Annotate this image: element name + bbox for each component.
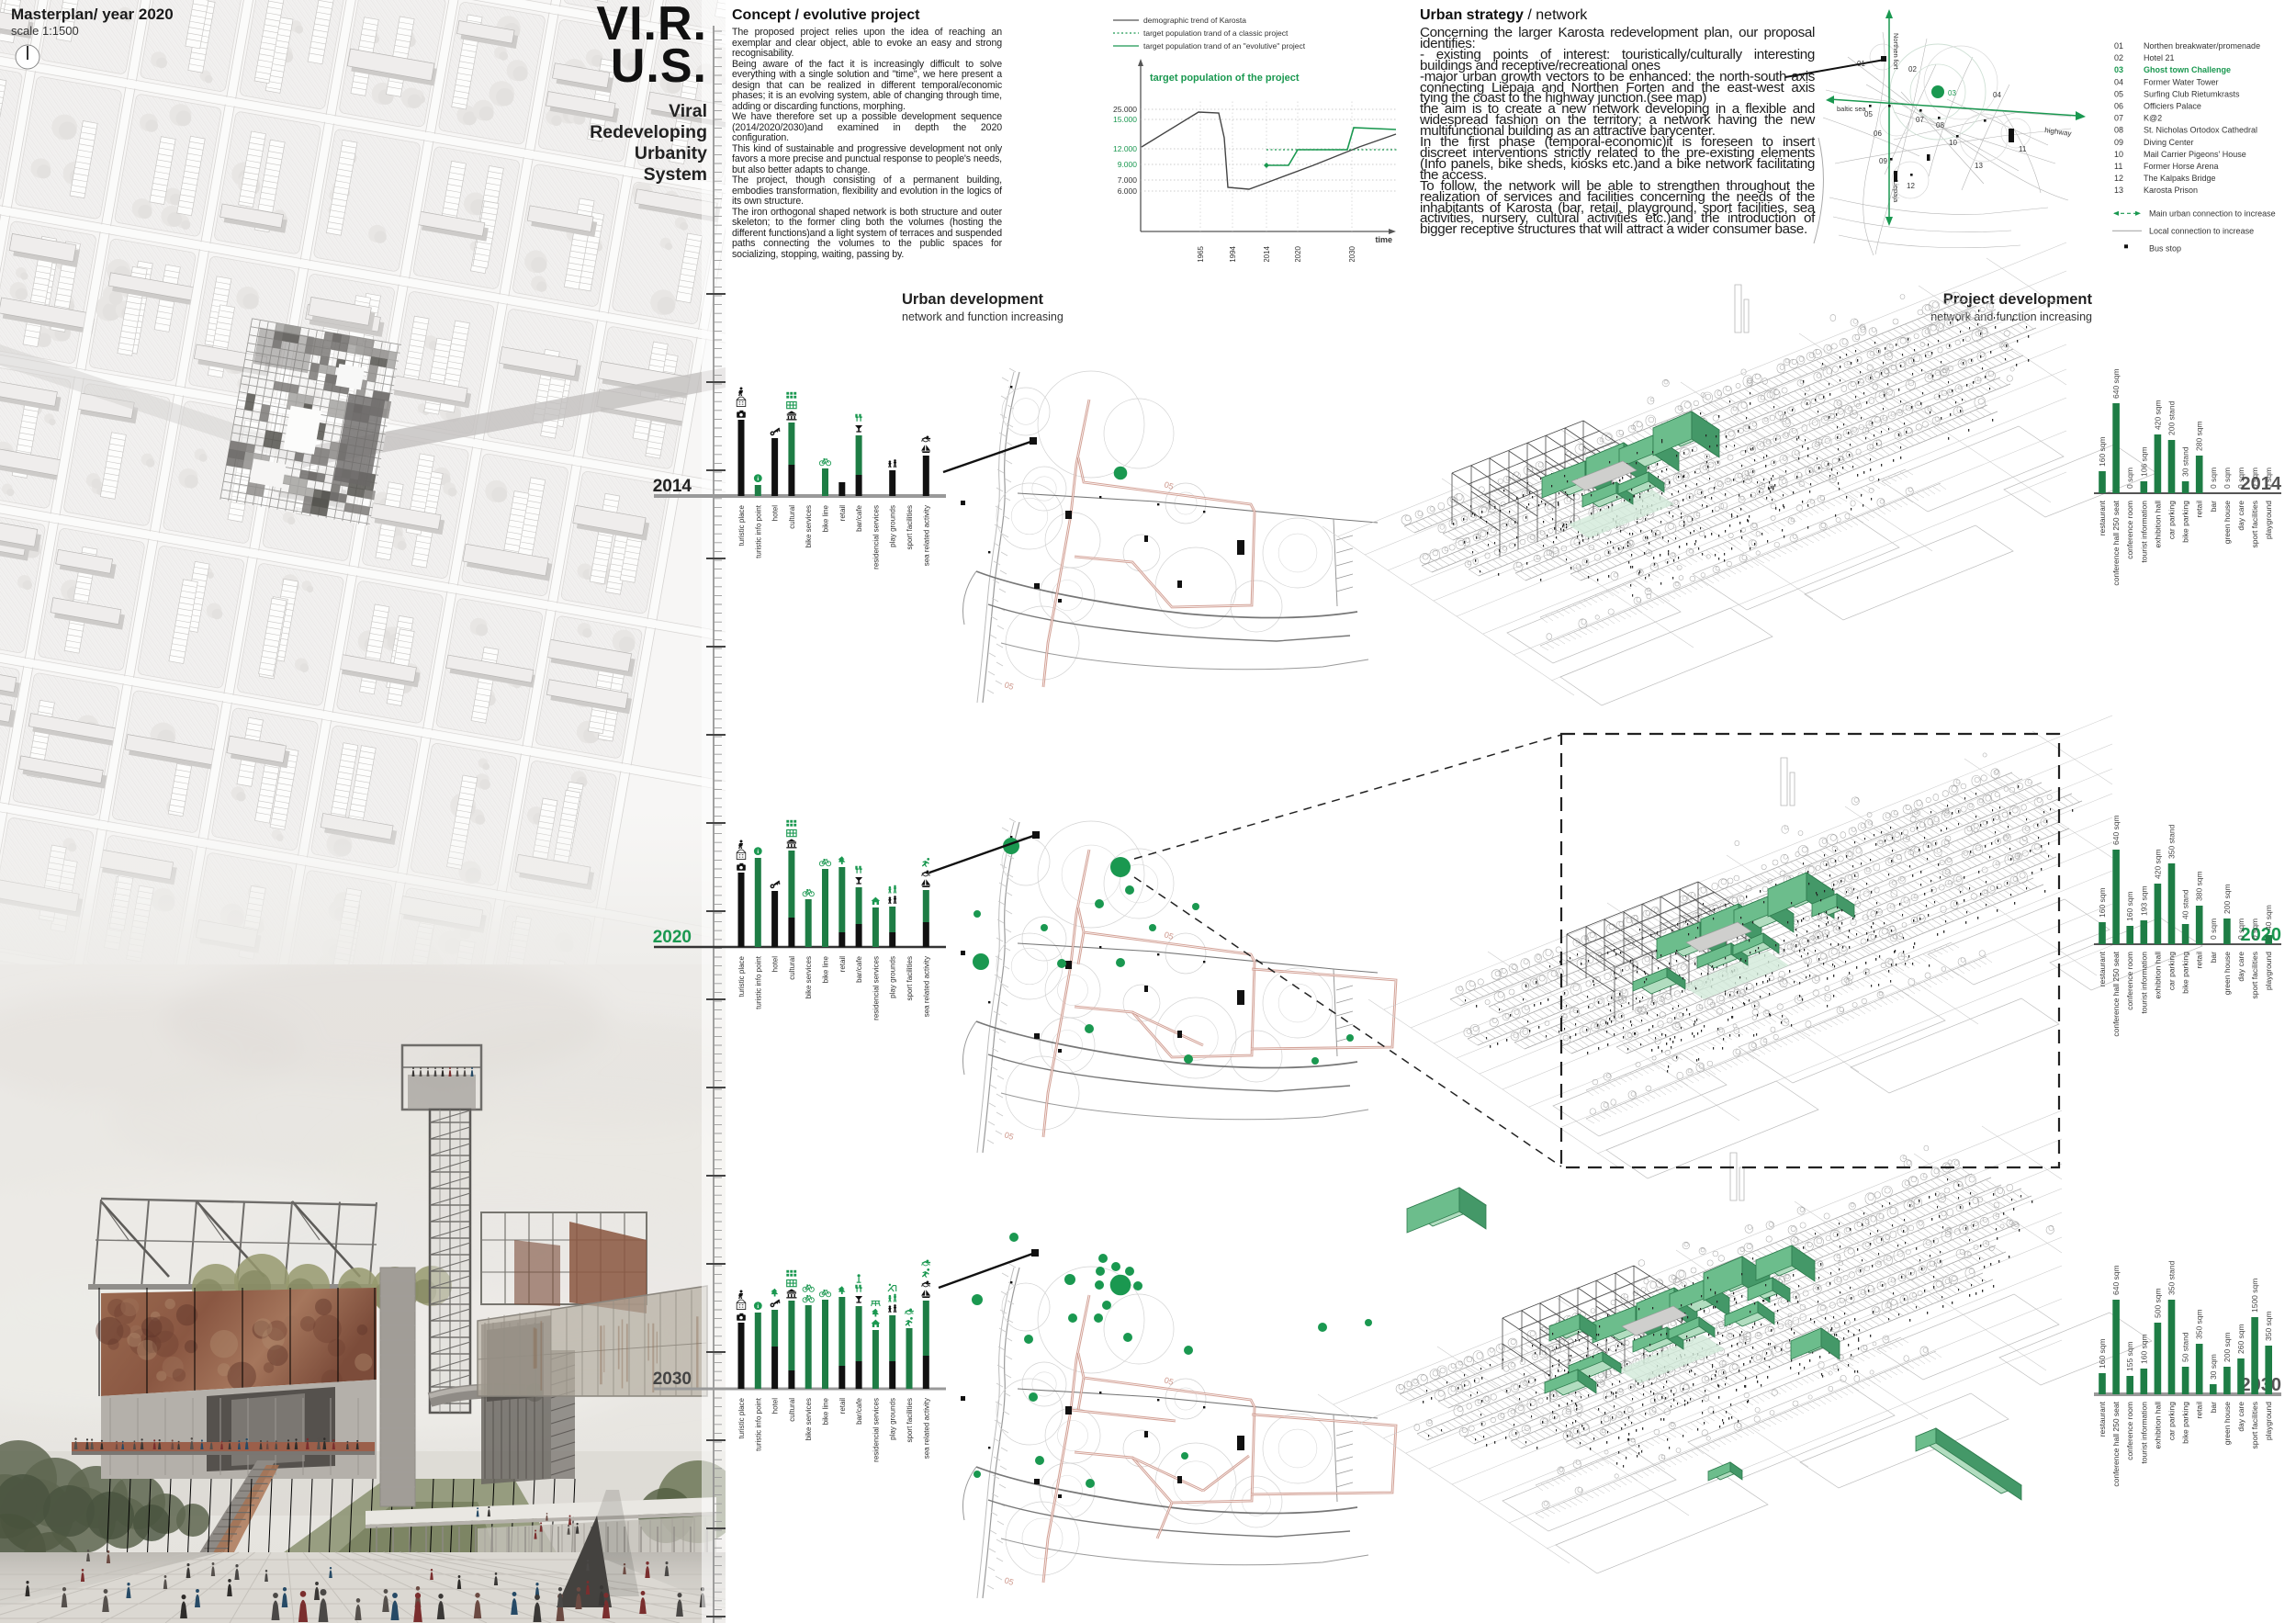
svg-text:day care: day care xyxy=(2236,501,2245,531)
svg-text:sport facilities: sport facilities xyxy=(2250,1402,2259,1449)
svg-text:420 sqm: 420 sqm xyxy=(2153,400,2162,430)
svg-text:1500 sqm: 1500 sqm xyxy=(2250,1279,2259,1313)
svg-text:sport facilities: sport facilities xyxy=(906,956,914,1000)
svg-text:bike services: bike services xyxy=(805,956,813,998)
svg-text:conference hall 250 seat: conference hall 250 seat xyxy=(2111,1401,2121,1486)
svg-text:160 sqm: 160 sqm xyxy=(2098,436,2107,467)
svg-text:bar/cafe: bar/cafe xyxy=(855,504,863,531)
svg-text:380 sqm: 380 sqm xyxy=(2195,871,2204,901)
svg-text:conference room: conference room xyxy=(2125,501,2134,559)
svg-text:cultural: cultural xyxy=(788,956,796,980)
svg-text:50 stand: 50 stand xyxy=(2181,1332,2190,1362)
svg-text:restaurant: restaurant xyxy=(2098,951,2107,986)
svg-text:2014: 2014 xyxy=(653,477,692,496)
svg-text:cultural: cultural xyxy=(788,505,796,529)
svg-text:turistic place: turistic place xyxy=(737,955,746,997)
svg-text:residencial services: residencial services xyxy=(872,956,880,1020)
svg-text:0 sqm: 0 sqm xyxy=(2236,919,2245,940)
svg-text:turistic info point: turistic info point xyxy=(754,504,762,558)
svg-text:160 sqm: 160 sqm xyxy=(2139,1334,2148,1364)
svg-text:car parking: car parking xyxy=(2167,1402,2177,1440)
svg-text:bar: bar xyxy=(2209,501,2218,512)
svg-text:retail: retail xyxy=(838,505,847,522)
svg-text:0 sqm: 0 sqm xyxy=(2264,468,2273,489)
svg-text:40 stand: 40 stand xyxy=(2181,889,2190,919)
svg-text:conference room: conference room xyxy=(2125,1402,2134,1460)
svg-text:turistic info point: turistic info point xyxy=(754,1397,762,1451)
svg-text:retail: retail xyxy=(838,956,847,973)
svg-text:hotel: hotel xyxy=(771,1398,780,1414)
svg-text:bike parking: bike parking xyxy=(2181,501,2190,543)
svg-text:retail: retail xyxy=(2195,501,2204,518)
svg-text:sport facilities: sport facilities xyxy=(2250,501,2259,548)
svg-text:0 sqm: 0 sqm xyxy=(2223,468,2232,489)
svg-text:green house: green house xyxy=(2223,952,2232,996)
svg-text:200 sqm: 200 sqm xyxy=(2223,884,2232,914)
svg-text:200 stand: 200 stand xyxy=(2167,400,2177,435)
svg-text:350 sqm: 350 sqm xyxy=(2195,1309,2204,1339)
svg-text:sea related activity: sea related activity xyxy=(922,1398,930,1459)
svg-text:0 sqm: 0 sqm xyxy=(2209,468,2218,489)
svg-text:2020: 2020 xyxy=(2241,925,2282,945)
svg-text:conference hall 250 seat: conference hall 250 seat xyxy=(2111,500,2121,585)
svg-text:2030: 2030 xyxy=(2241,1375,2282,1395)
svg-text:bike line: bike line xyxy=(822,504,830,532)
svg-text:160 sqm: 160 sqm xyxy=(2098,1338,2107,1369)
svg-text:160 sqm: 160 sqm xyxy=(2125,891,2134,921)
svg-text:i: i xyxy=(757,849,759,855)
svg-text:0 sqm: 0 sqm xyxy=(2236,468,2245,489)
svg-text:playground: playground xyxy=(2264,501,2273,539)
svg-text:residencial services: residencial services xyxy=(872,1398,880,1462)
svg-text:play grounds: play grounds xyxy=(889,1398,897,1440)
svg-text:bike services: bike services xyxy=(805,505,813,547)
svg-text:exhibition hall: exhibition hall xyxy=(2153,501,2162,548)
svg-text:residencial services: residencial services xyxy=(872,505,880,569)
svg-text:restaurant: restaurant xyxy=(2098,1401,2107,1437)
svg-text:40 sqm: 40 sqm xyxy=(2264,905,2273,930)
svg-text:bike parking: bike parking xyxy=(2181,952,2190,994)
svg-text:2020: 2020 xyxy=(653,928,692,947)
svg-text:playground: playground xyxy=(2264,952,2273,990)
svg-text:i: i xyxy=(757,1303,759,1310)
svg-text:200 sqm: 200 sqm xyxy=(2223,1332,2232,1362)
svg-text:05: 05 xyxy=(1003,680,1015,692)
svg-text:sea related activity: sea related activity xyxy=(922,956,930,1017)
svg-text:tourist information: tourist information xyxy=(2139,952,2148,1014)
svg-text:sport facilities: sport facilities xyxy=(2250,952,2259,999)
svg-text:sport facilities: sport facilities xyxy=(906,505,914,549)
svg-text:exhibition hall: exhibition hall xyxy=(2153,952,2162,999)
svg-text:turistic info point: turistic info point xyxy=(754,955,762,1009)
svg-text:500 sqm: 500 sqm xyxy=(2153,1288,2162,1318)
svg-text:350 stand: 350 stand xyxy=(2167,824,2177,859)
svg-text:turistic place: turistic place xyxy=(737,1397,746,1438)
svg-text:0 sqm: 0 sqm xyxy=(2250,919,2259,940)
svg-text:conference hall 250 seat: conference hall 250 seat xyxy=(2111,951,2121,1036)
svg-text:play grounds: play grounds xyxy=(889,956,897,998)
svg-text:sea related activity: sea related activity xyxy=(922,505,930,566)
svg-text:day care: day care xyxy=(2236,1402,2245,1432)
svg-text:turistic place: turistic place xyxy=(737,504,746,546)
svg-text:155 sqm: 155 sqm xyxy=(2125,1341,2134,1371)
svg-text:play grounds: play grounds xyxy=(889,505,897,547)
svg-text:106 sqm: 106 sqm xyxy=(2139,446,2148,477)
svg-text:640 sqm: 640 sqm xyxy=(2111,368,2121,399)
svg-text:30 sqm: 30 sqm xyxy=(2209,1354,2218,1380)
svg-text:260 sqm: 260 sqm xyxy=(2236,1324,2245,1354)
svg-text:car parking: car parking xyxy=(2167,952,2177,990)
svg-text:hotel: hotel xyxy=(771,956,780,973)
svg-text:bike parking: bike parking xyxy=(2181,1402,2190,1444)
svg-text:2030: 2030 xyxy=(653,1369,692,1389)
svg-text:280 sqm: 280 sqm xyxy=(2195,421,2204,451)
svg-text:2014: 2014 xyxy=(2241,474,2282,494)
svg-text:tourist information: tourist information xyxy=(2139,501,2148,563)
svg-text:car parking: car parking xyxy=(2167,501,2177,539)
svg-text:350 stand: 350 stand xyxy=(2167,1260,2177,1295)
svg-text:0 sqm: 0 sqm xyxy=(2125,468,2134,489)
svg-text:tourist information: tourist information xyxy=(2139,1402,2148,1464)
svg-text:green house: green house xyxy=(2223,1402,2232,1446)
svg-text:sport facilities: sport facilities xyxy=(906,1398,914,1442)
svg-text:day care: day care xyxy=(2236,952,2245,982)
svg-text:exhibition hall: exhibition hall xyxy=(2153,1402,2162,1449)
svg-text:i: i xyxy=(757,476,759,482)
svg-text:hotel: hotel xyxy=(771,505,780,522)
svg-text:bike line: bike line xyxy=(822,955,830,983)
svg-text:cultural: cultural xyxy=(788,1398,796,1422)
svg-text:160 sqm: 160 sqm xyxy=(2098,887,2107,918)
svg-text:bike line: bike line xyxy=(822,1397,830,1425)
svg-text:0 sqm: 0 sqm xyxy=(2250,468,2259,489)
svg-text:conference room: conference room xyxy=(2125,952,2134,1010)
svg-text:420 sqm: 420 sqm xyxy=(2153,849,2162,879)
svg-text:bar/cafe: bar/cafe xyxy=(855,955,863,982)
svg-text:350 sqm: 350 sqm xyxy=(2264,1311,2273,1341)
svg-text:05: 05 xyxy=(1003,1575,1015,1587)
svg-text:network and function increasin: network and function increasing xyxy=(902,310,1064,323)
svg-text:0 sqm: 0 sqm xyxy=(2209,919,2218,940)
svg-text:Urban development: Urban development xyxy=(902,291,1044,308)
svg-text:bar: bar xyxy=(2209,952,2218,963)
svg-text:green house: green house xyxy=(2223,501,2232,545)
svg-text:retail: retail xyxy=(2195,1402,2204,1419)
svg-text:05: 05 xyxy=(1003,1130,1015,1142)
svg-text:bike services: bike services xyxy=(805,1398,813,1440)
svg-text:bar: bar xyxy=(2209,1402,2218,1413)
svg-text:640 sqm: 640 sqm xyxy=(2111,1265,2121,1295)
svg-text:05: 05 xyxy=(1163,479,1175,491)
svg-text:05: 05 xyxy=(1163,1375,1175,1387)
svg-text:restaurant: restaurant xyxy=(2098,500,2107,535)
svg-text:retail: retail xyxy=(2195,952,2204,969)
svg-text:05: 05 xyxy=(1163,930,1175,941)
svg-text:30 stand: 30 stand xyxy=(2181,446,2190,477)
svg-text:retail: retail xyxy=(838,1398,847,1414)
svg-text:bar/cafe: bar/cafe xyxy=(855,1397,863,1424)
svg-text:193 sqm: 193 sqm xyxy=(2139,885,2148,916)
svg-text:playground: playground xyxy=(2264,1402,2273,1440)
svg-text:640 sqm: 640 sqm xyxy=(2111,815,2121,845)
